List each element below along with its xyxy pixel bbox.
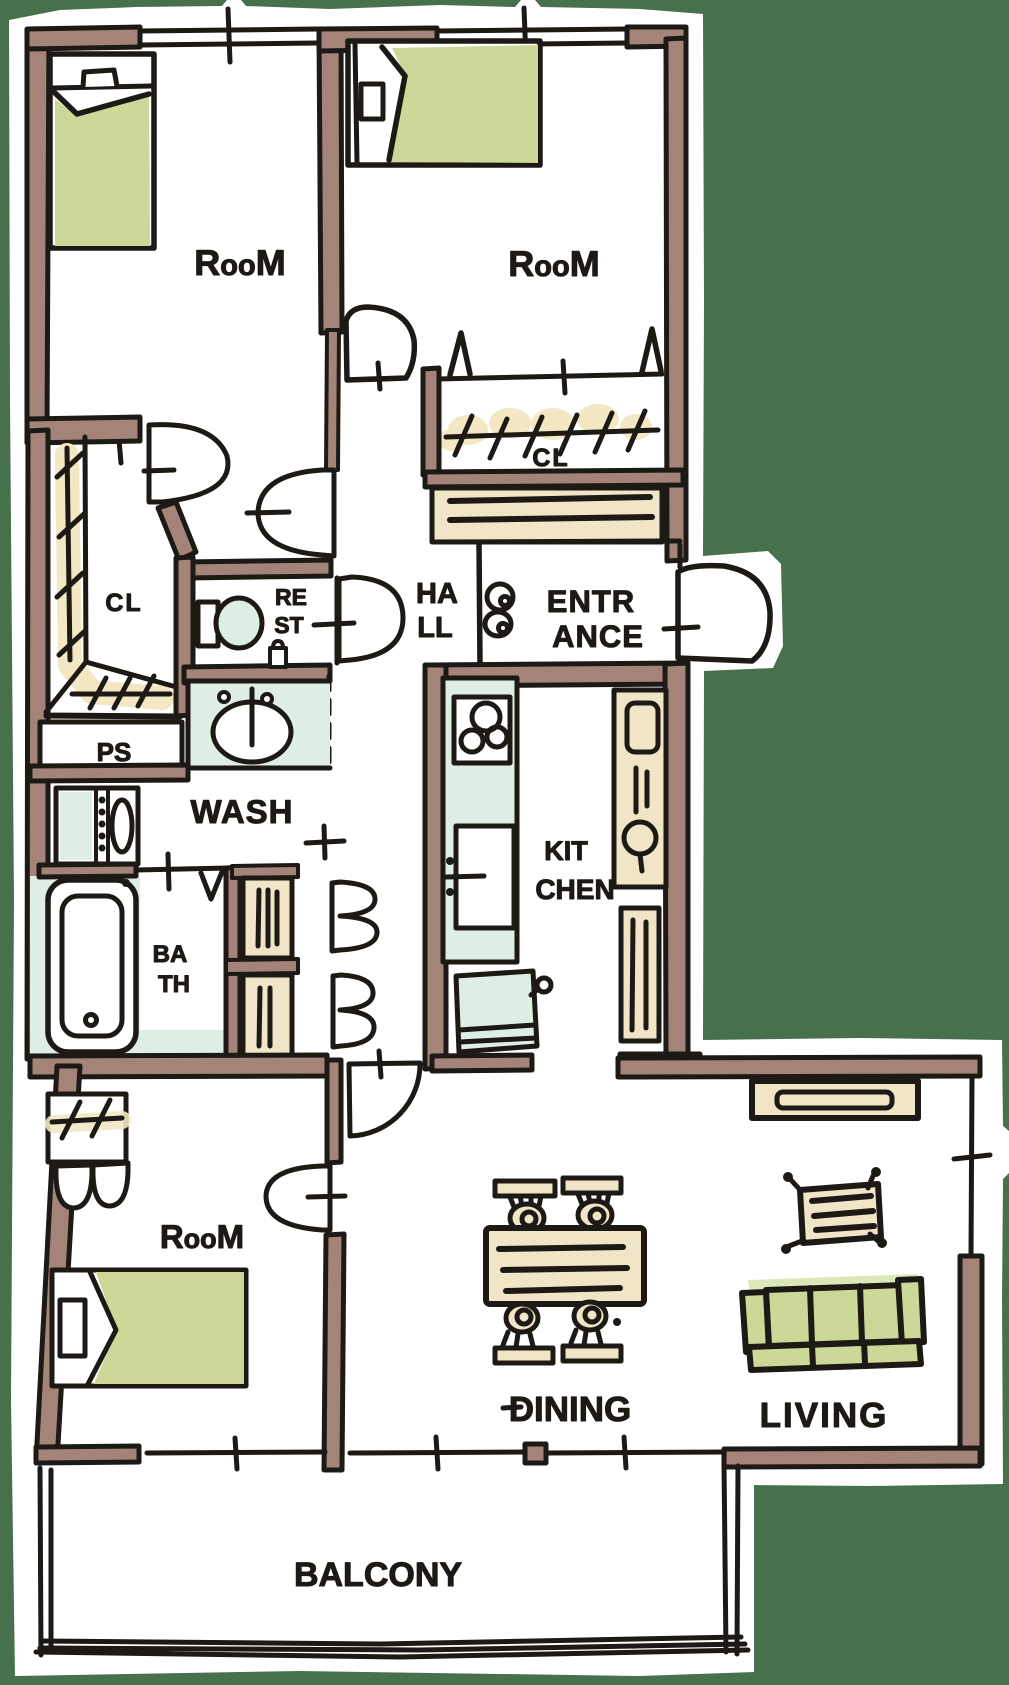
svg-text:HA: HA: [416, 578, 458, 610]
svg-text:TH: TH: [158, 971, 190, 998]
svg-text:LL: LL: [417, 612, 452, 644]
svg-text:KIT: KIT: [544, 836, 588, 866]
svg-text:ANCE: ANCE: [552, 619, 644, 654]
svg-text:CHEN: CHEN: [535, 874, 614, 905]
svg-text:RE: RE: [275, 584, 307, 610]
svg-text:LIVING: LIVING: [760, 1396, 889, 1435]
svg-text:CL: CL: [105, 589, 142, 617]
svg-text:ST: ST: [274, 612, 303, 638]
svg-text:CL: CL: [532, 444, 569, 472]
svg-text:DINING: DINING: [509, 1390, 632, 1429]
svg-text:BALCONY: BALCONY: [294, 1556, 462, 1594]
svg-text:PS: PS: [97, 737, 132, 767]
svg-text:WASH: WASH: [191, 793, 294, 830]
svg-text:ENTR: ENTR: [547, 584, 635, 619]
svg-text:RooM: RooM: [160, 1218, 244, 1255]
svg-text:BA: BA: [153, 941, 188, 968]
